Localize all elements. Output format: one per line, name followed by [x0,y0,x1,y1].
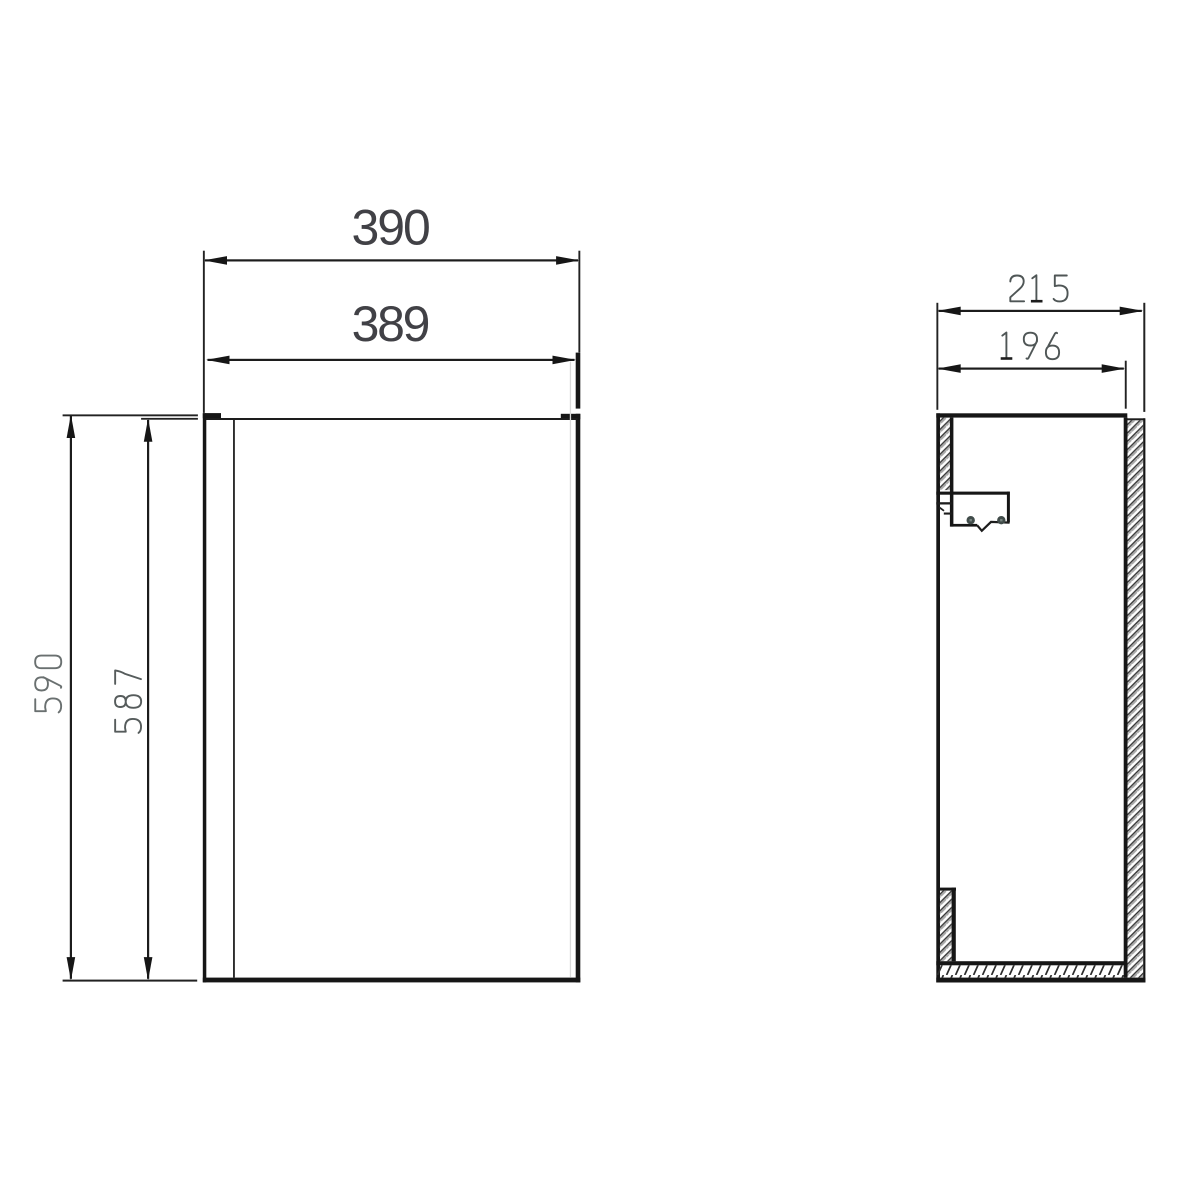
svg-text:389: 389 [352,296,431,352]
svg-text:390: 390 [352,199,431,255]
